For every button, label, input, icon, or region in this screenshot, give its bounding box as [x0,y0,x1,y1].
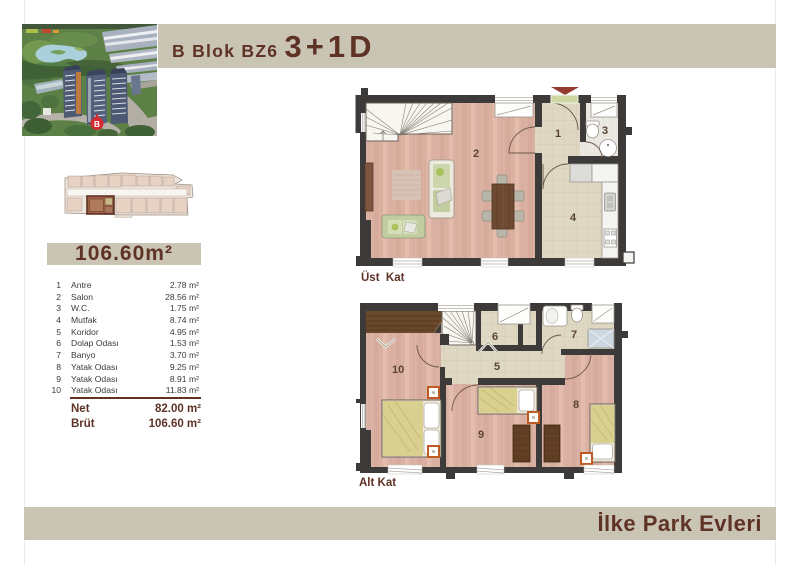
svg-text:1: 1 [555,128,561,140]
svg-text:10: 10 [392,364,404,376]
svg-text:4: 4 [570,212,577,224]
svg-text:8: 8 [573,399,579,411]
svg-text:7: 7 [571,329,577,341]
svg-text:3: 3 [602,125,608,137]
svg-text:6: 6 [492,331,498,343]
svg-text:2: 2 [473,148,479,160]
svg-text:9: 9 [478,429,484,441]
svg-text:B: B [94,119,100,129]
svg-text:5: 5 [494,361,500,373]
